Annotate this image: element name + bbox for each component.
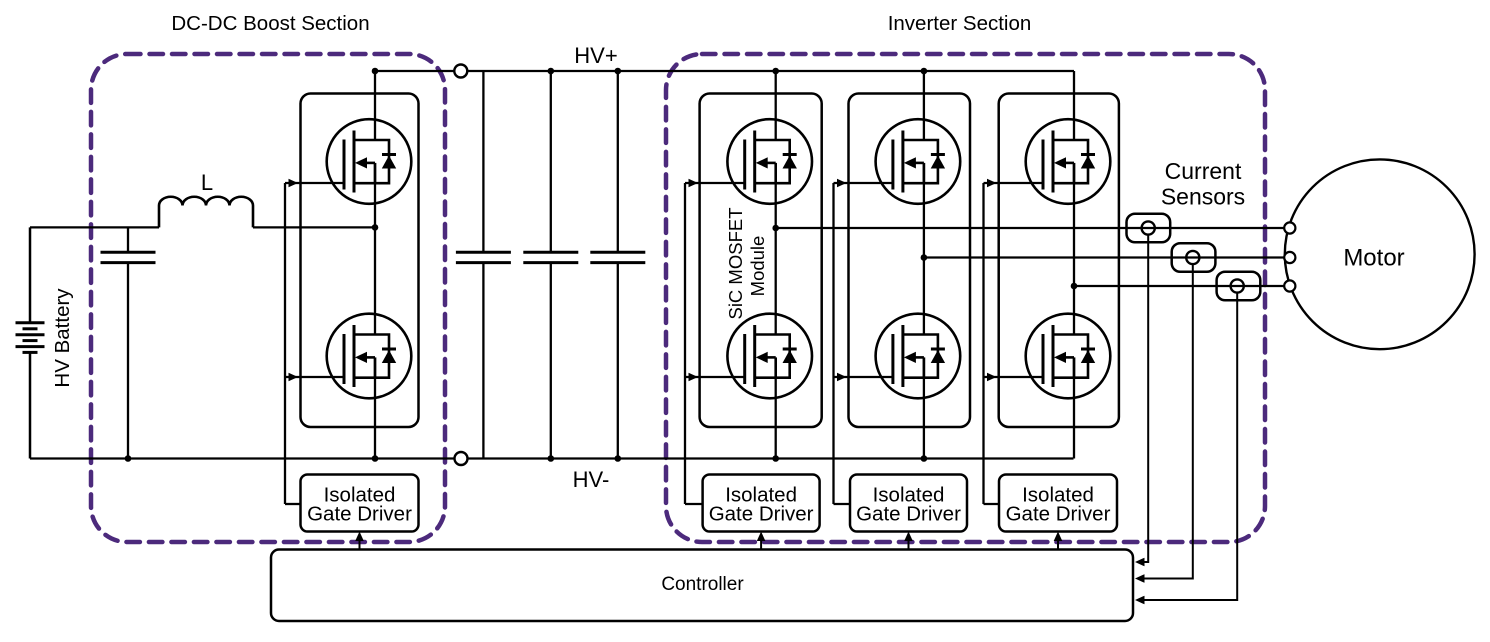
svg-text:DC-DC Boost Section: DC-DC Boost Section: [171, 12, 369, 35]
svg-text:HV+: HV+: [574, 43, 617, 68]
svg-text:Gate Driver: Gate Driver: [1006, 503, 1111, 526]
svg-text:Inverter Section: Inverter Section: [888, 12, 1032, 35]
svg-text:Current: Current: [1165, 158, 1242, 184]
svg-text:Gate Driver: Gate Driver: [856, 503, 961, 526]
svg-text:Module: Module: [747, 236, 768, 297]
svg-text:Gate Driver: Gate Driver: [709, 503, 814, 526]
svg-text:Controller: Controller: [661, 574, 744, 595]
svg-text:SiC MOSFET: SiC MOSFET: [725, 207, 746, 319]
svg-text:Sensors: Sensors: [1161, 184, 1245, 210]
svg-text:L: L: [201, 170, 213, 195]
svg-text:HV-: HV-: [573, 467, 610, 492]
svg-text:Motor: Motor: [1343, 245, 1404, 272]
svg-text:Gate Driver: Gate Driver: [307, 503, 412, 526]
svg-text:HV Battery: HV Battery: [51, 288, 74, 388]
